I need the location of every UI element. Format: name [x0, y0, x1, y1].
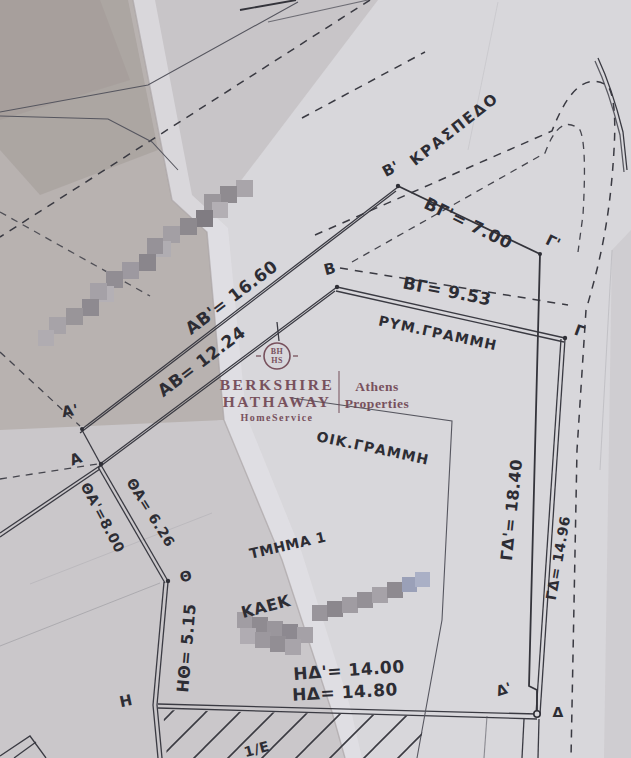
office-line1: Athens: [355, 379, 399, 394]
brand-line2: HATHAWAY: [223, 393, 332, 410]
logo-text-bh: BH: [271, 347, 284, 356]
point-a-prime: Α': [60, 401, 79, 422]
brand-sub: HomeService: [240, 412, 313, 423]
point-delta: Δ: [553, 704, 564, 720]
brand-line1: BERKSHIRE: [220, 376, 335, 393]
logo-text-hs: HS: [271, 356, 283, 365]
scanned-survey-plan: ΚΡΑΣΠΕΔΟ Β' ΒΓ'= 7.00 Γ' ΑΒ'= 16.60 ΑΒ= …: [0, 0, 631, 758]
office-line2: Properties: [345, 396, 410, 411]
